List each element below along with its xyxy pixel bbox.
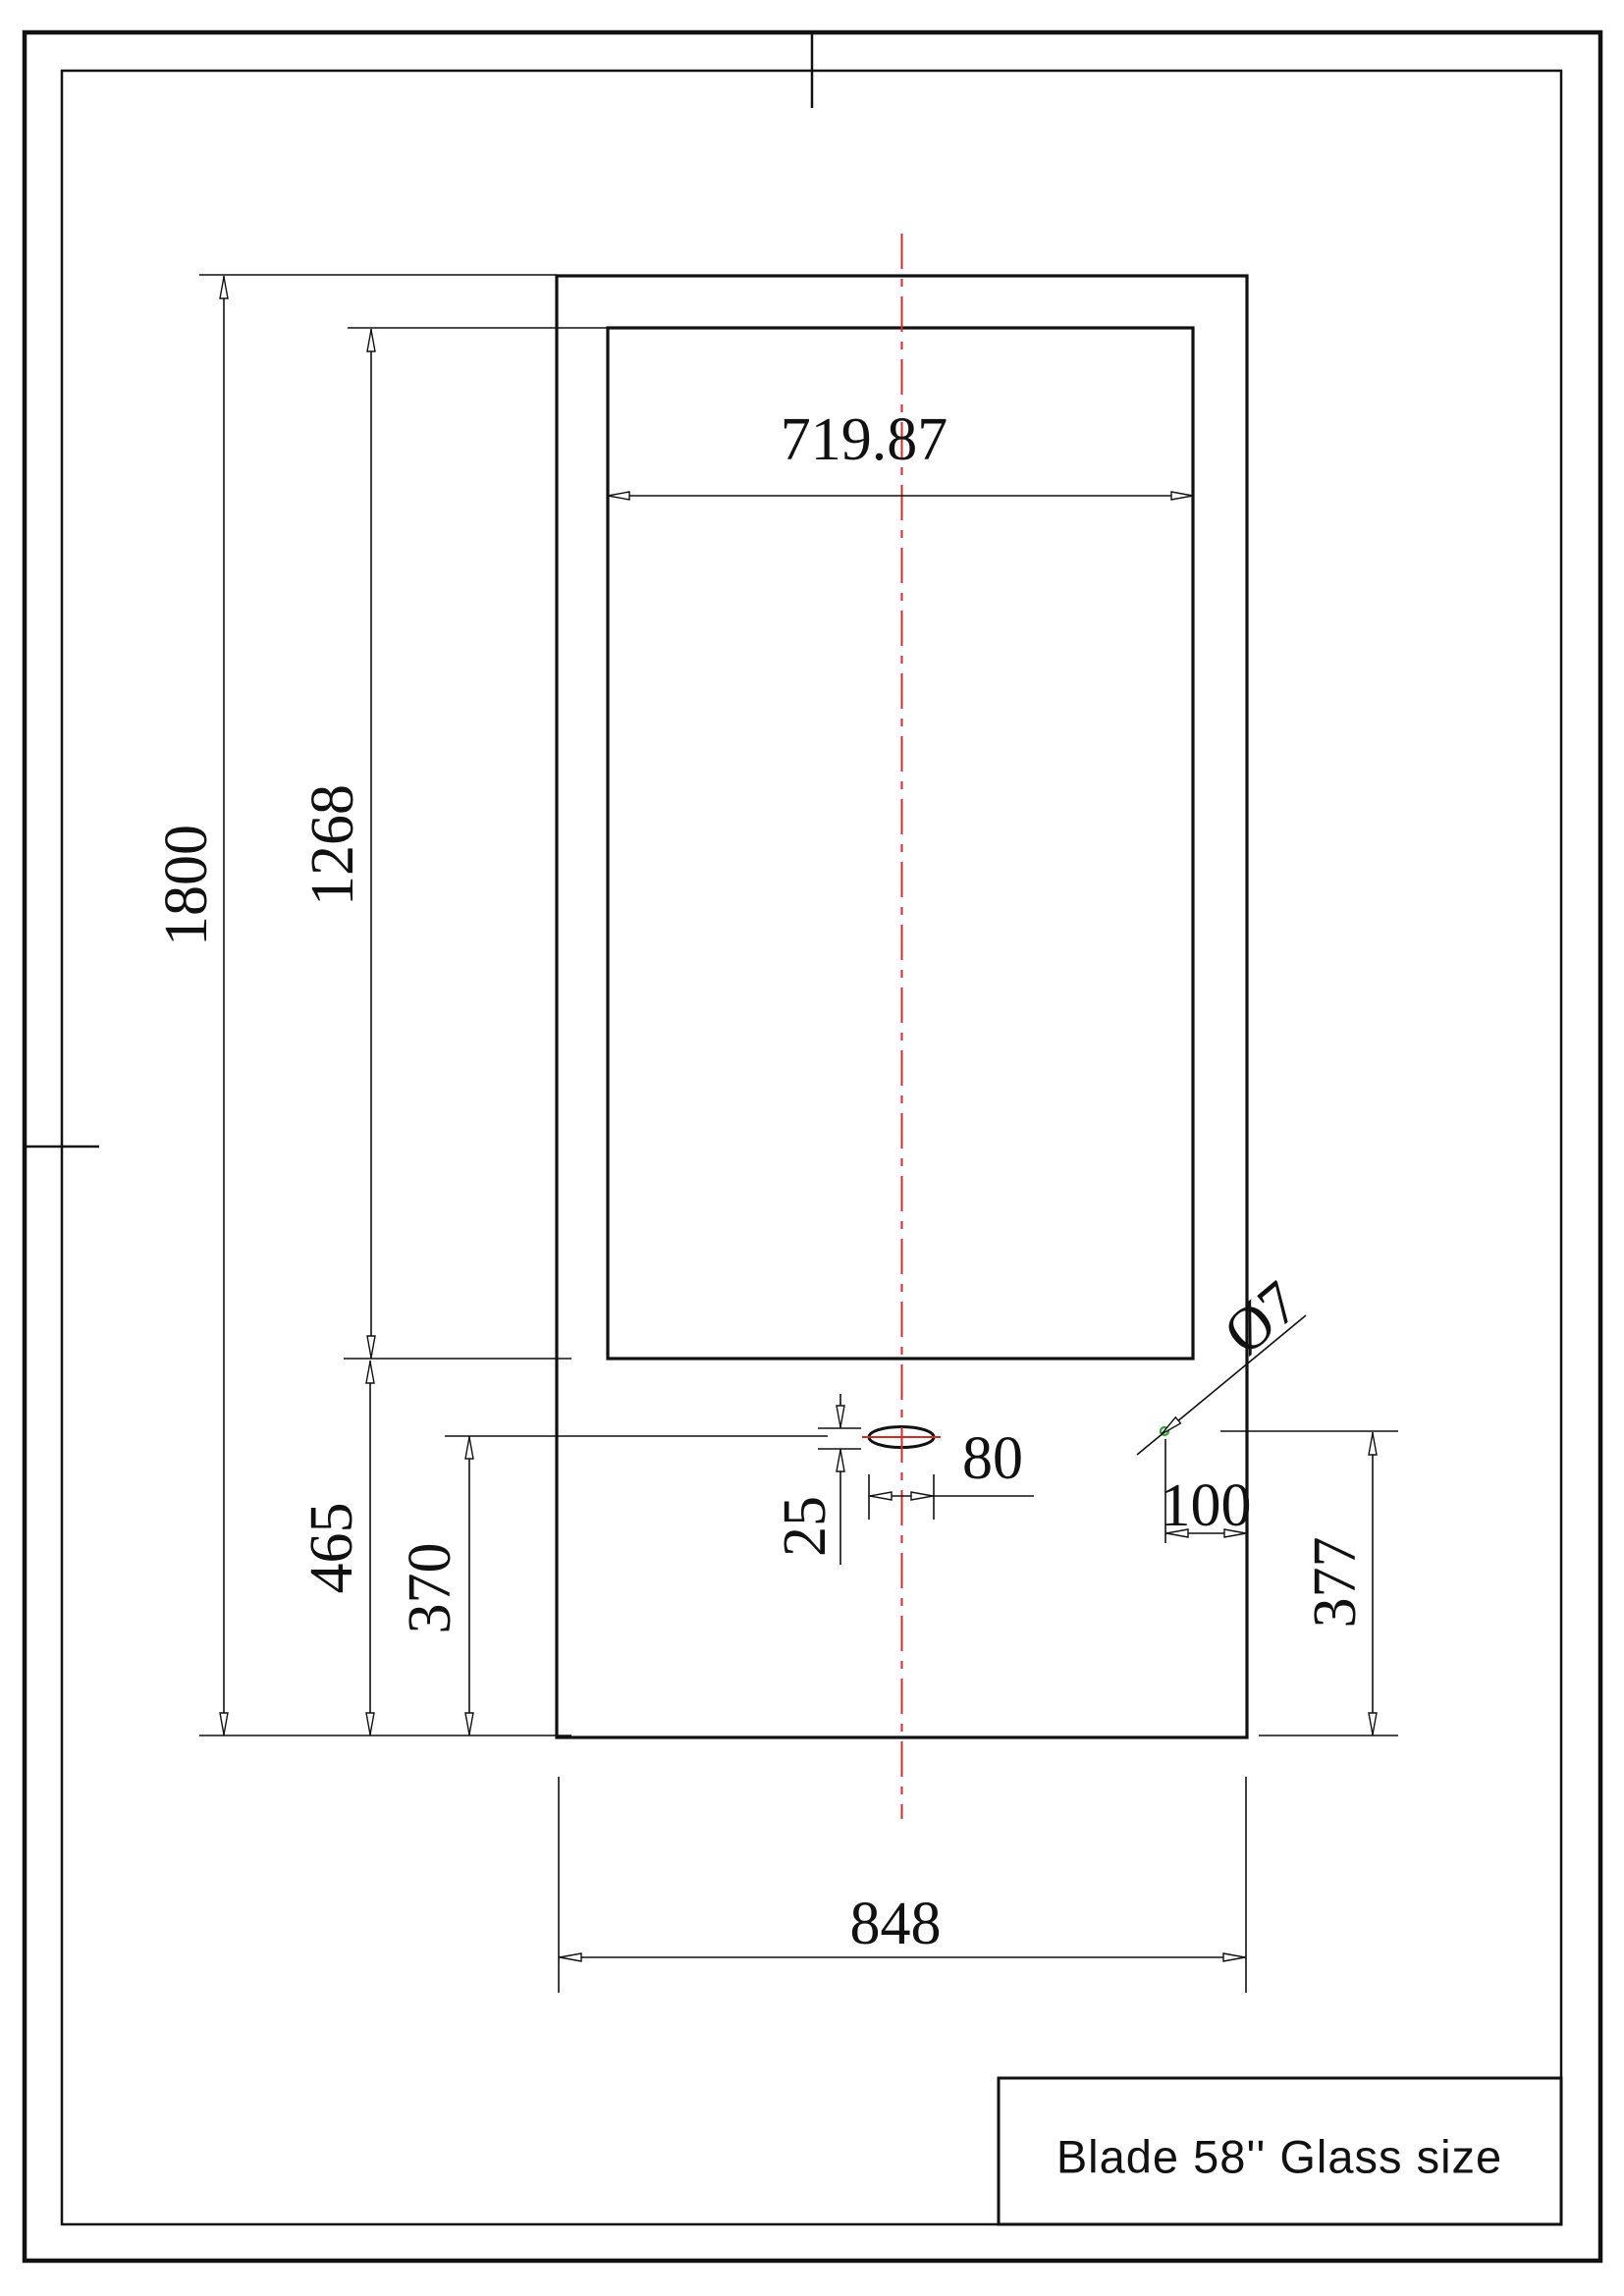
- dim-100-label: 100: [1161, 1472, 1252, 1539]
- cad-drawing-canvas: Blade 58'' Glass size: [0, 0, 1624, 2296]
- title-block: Blade 58'' Glass size: [999, 2078, 1561, 2224]
- title-block-text: Blade 58'' Glass size: [1056, 2131, 1502, 2183]
- dim-1268-label: 1268: [299, 784, 366, 906]
- dim-719-label: 719.87: [781, 406, 948, 473]
- dim-465-label: 465: [298, 1503, 365, 1594]
- drawing-sheet: Blade 58'' Glass size: [0, 0, 1624, 2296]
- dim-25-label: 25: [772, 1496, 839, 1557]
- dim-848-label: 848: [850, 1891, 942, 1957]
- dim-1800-label: 1800: [153, 825, 220, 946]
- dim-80-label: 80: [962, 1425, 1023, 1492]
- dim-377-label: 377: [1302, 1537, 1369, 1629]
- dim-370-label: 370: [397, 1543, 463, 1634]
- paper-background: [0, 0, 1624, 2296]
